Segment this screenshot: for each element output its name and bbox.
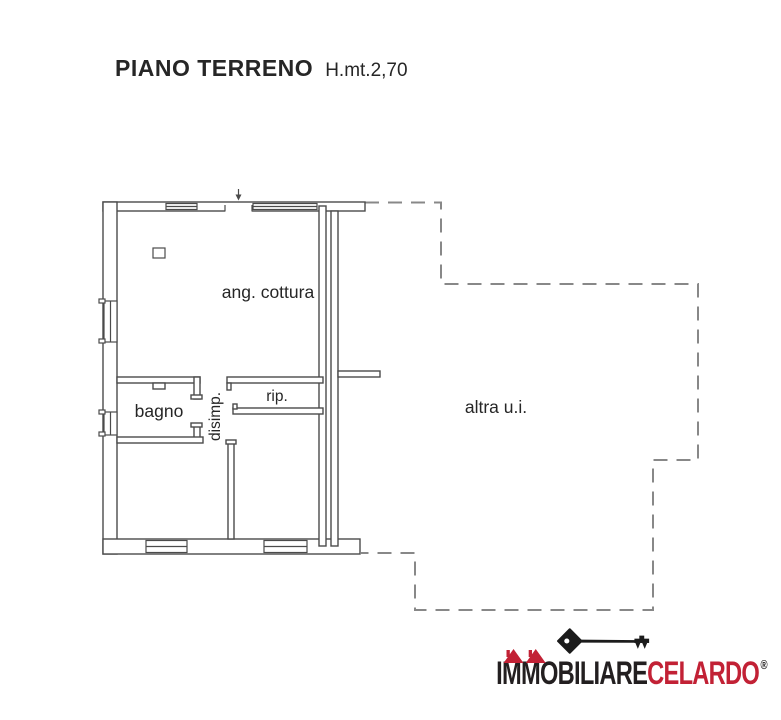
door-jamb (233, 404, 237, 409)
entrance-arrow-icon (236, 189, 242, 201)
altra-ui-dashed-outline (361, 203, 698, 611)
right-wall-adjacent (331, 211, 338, 546)
door-jamb (191, 395, 202, 399)
registered-mark: ® (761, 657, 767, 672)
brand-celardo: CELARDO (647, 655, 759, 692)
room-label-rip: rip. (266, 388, 288, 405)
lower-divider-wall (228, 443, 234, 539)
door-jamb (227, 383, 231, 390)
room-label-ang-cottura: ang. cottura (222, 282, 315, 302)
rip-top-wall (227, 377, 323, 383)
room-label-disimp: disimp. (207, 392, 224, 441)
room-label-bagno: bagno (135, 401, 184, 421)
door-jamb (226, 440, 236, 444)
adjacent-wall-stub (338, 371, 380, 377)
wall-pilaster (153, 383, 165, 389)
agency-logo: IMMOBILIARE CELARDO ® (457, 652, 767, 692)
rip-bottom-wall (233, 408, 323, 414)
house-roof-icon (526, 648, 546, 663)
house-roof-icon (504, 648, 524, 663)
entrance-opening (225, 206, 252, 213)
top-wall-windows (166, 189, 317, 212)
bagno-bottom-wall (117, 437, 203, 443)
floorplan-page: PIANO TERRENO H.mt.2,70 (0, 0, 781, 720)
left-wall (103, 202, 117, 554)
brand-wordmark: IMMOBILIARE CELARDO ® (496, 655, 767, 692)
brand-immobiliare: IMMOBILIARE (496, 655, 647, 692)
right-wall-inner (319, 206, 326, 546)
door-jamb (191, 423, 202, 427)
floorplan-drawing: ang. cottura bagno disimp. rip. altra u.… (0, 0, 781, 720)
room-label-altra-ui: altra u.i. (465, 397, 527, 417)
bagno-top-wall (117, 377, 200, 383)
pillar-symbol (153, 248, 165, 258)
key-icon (557, 628, 655, 655)
